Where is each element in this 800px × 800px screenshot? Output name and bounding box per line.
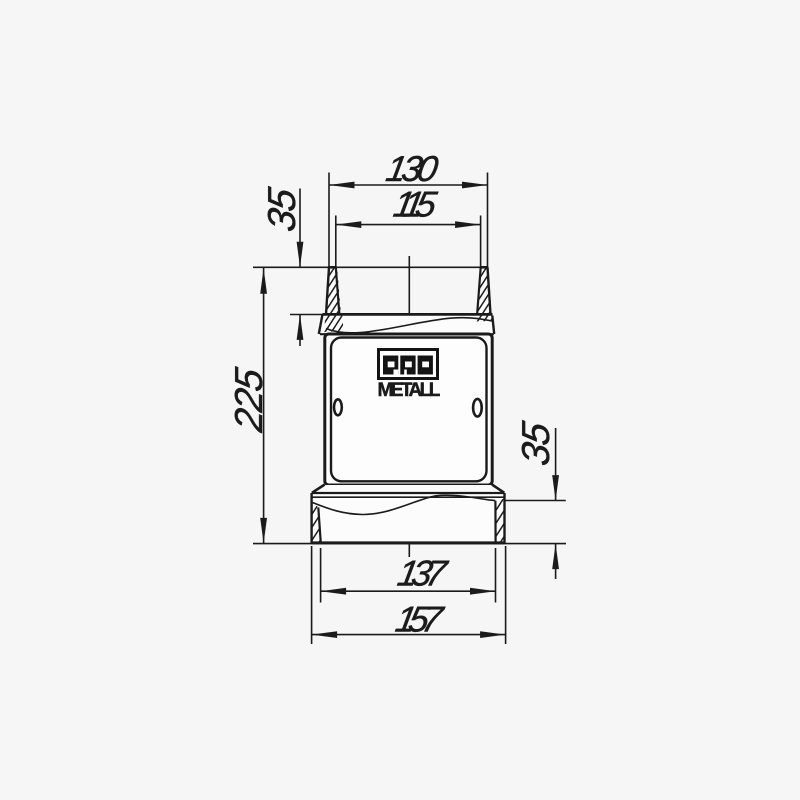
svg-text:35: 35 bbox=[260, 185, 304, 235]
svg-text:115: 115 bbox=[391, 184, 441, 225]
svg-text:137: 137 bbox=[395, 553, 452, 594]
svg-text:35: 35 bbox=[514, 419, 558, 469]
svg-text:METALL: METALL bbox=[378, 380, 441, 401]
svg-text:157: 157 bbox=[393, 599, 448, 640]
svg-text:225: 225 bbox=[227, 365, 271, 436]
